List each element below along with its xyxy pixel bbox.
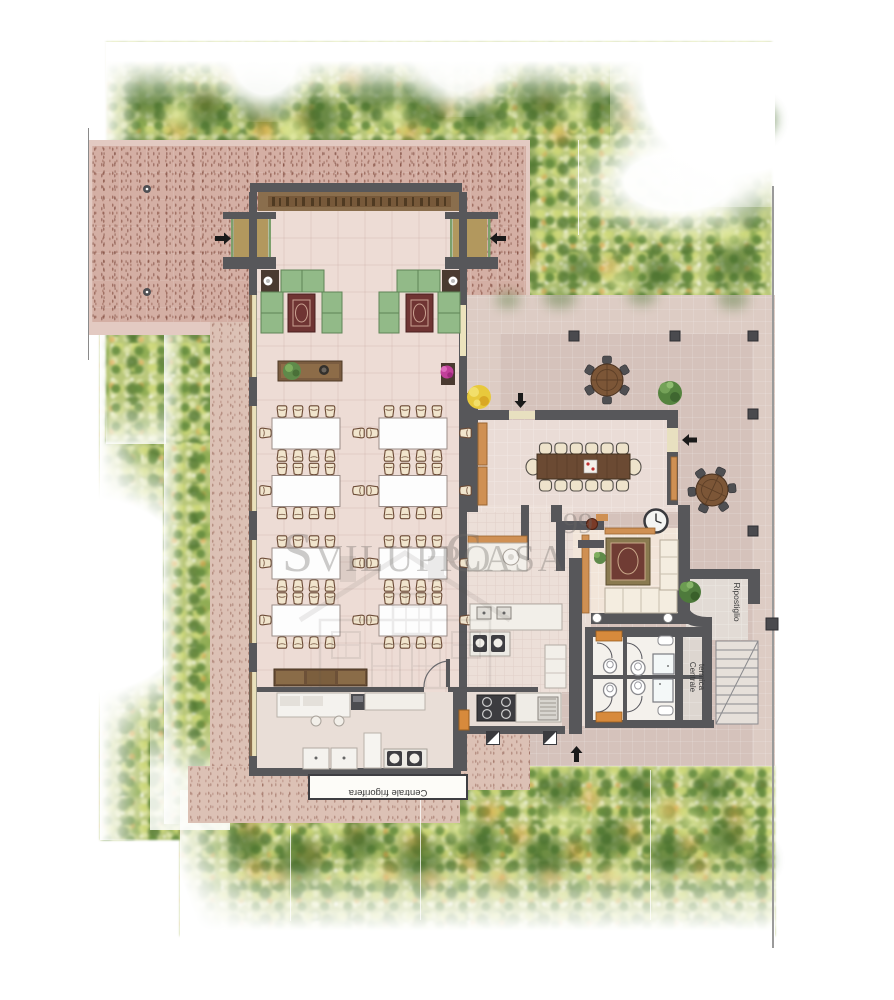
svg-text:99: 99 bbox=[563, 507, 593, 540]
svg-text:Centrale: Centrale bbox=[688, 662, 697, 693]
svg-text:ASA: ASA bbox=[484, 538, 568, 580]
svg-text:C: C bbox=[445, 522, 482, 584]
svg-text:S: S bbox=[282, 522, 313, 584]
svg-text:Ripostiglio: Ripostiglio bbox=[732, 582, 742, 621]
svg-text:termica: termica bbox=[697, 664, 706, 691]
svg-text:Centrale frigorifera: Centrale frigorifera bbox=[348, 787, 427, 798]
